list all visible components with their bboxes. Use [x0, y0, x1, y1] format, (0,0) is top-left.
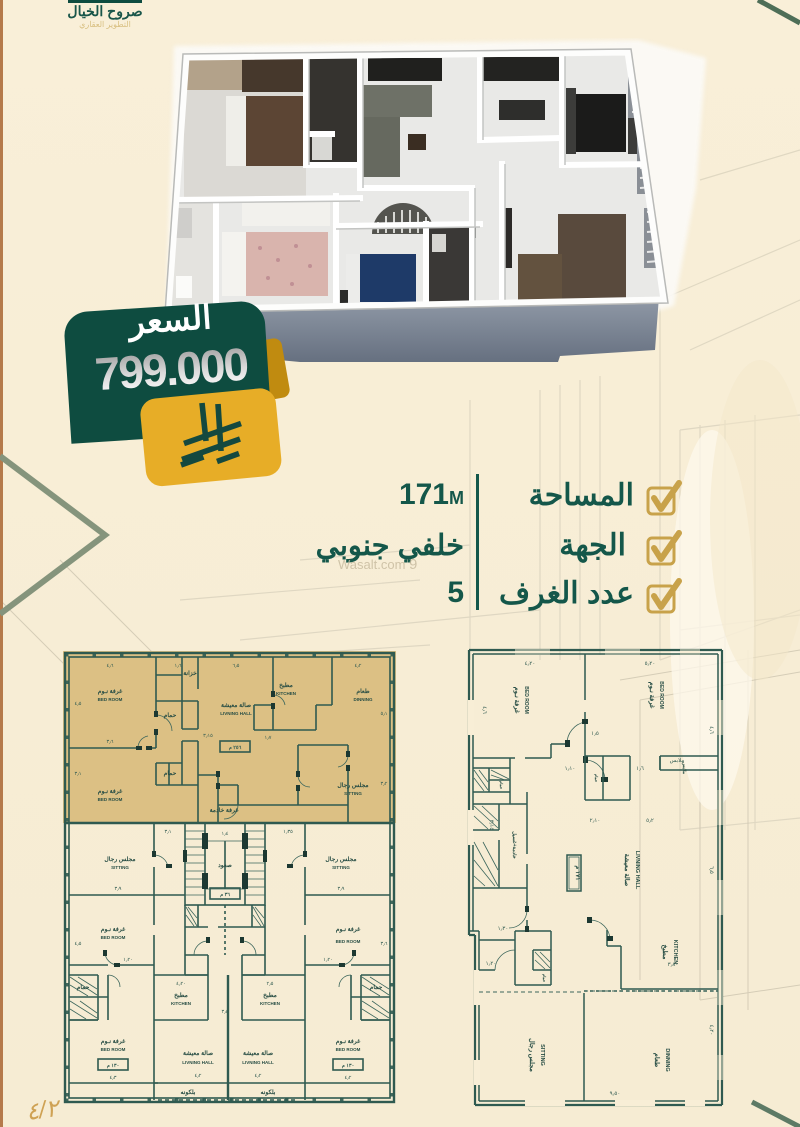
- svg-text:٤٫٢٠: ٤٫٢٠: [708, 1025, 714, 1036]
- svg-text:١٫٢٠: ١٫٢٠: [486, 961, 497, 967]
- svg-text:صالة معيشة: صالة معيشة: [623, 854, 631, 887]
- svg-text:حمام: حمام: [164, 770, 177, 777]
- svg-text:بلكونه: بلكونه: [181, 1089, 196, 1096]
- svg-text:حمام: حمام: [370, 984, 383, 991]
- svg-text:LIVNING HALL: LIVNING HALL: [634, 851, 640, 890]
- svg-text:٣٫٥: ٣٫٥: [222, 1009, 229, 1015]
- svg-text:مجلس رجال: مجلس رجال: [325, 856, 356, 863]
- svg-text:٤٫٦: ٤٫٦: [107, 663, 114, 669]
- svg-text:غرفة نـوم: غرفة نـوم: [101, 926, 126, 933]
- svg-text:KITCHEN: KITCHEN: [171, 1001, 191, 1006]
- svg-text:صعود: صعود: [218, 863, 232, 869]
- svg-text:غرفة نـوم: غرفة نـوم: [648, 682, 655, 709]
- svg-text:KITCHEN: KITCHEN: [276, 691, 296, 696]
- svg-text:مطبخ: مطبخ: [263, 992, 277, 999]
- svg-text:غرفة نـوم: غرفة نـوم: [336, 926, 361, 933]
- svg-text:مطبخ: مطبخ: [174, 992, 188, 999]
- svg-text:١٧١ م: ١٧١ م: [574, 865, 580, 880]
- svg-text:٤٫٢٠: ٤٫٢٠: [525, 661, 536, 667]
- svg-text:صالة معيشة: صالة معيشة: [221, 702, 251, 709]
- svg-text:DINNING: DINNING: [664, 1048, 670, 1071]
- svg-text:طعام: طعام: [356, 688, 369, 695]
- svg-text:٣٫٨٠: ٣٫٨٠: [668, 962, 679, 968]
- svg-text:١٫٢٠: ١٫٢٠: [323, 957, 333, 963]
- svg-text:غرفة نـوم: غرفة نـوم: [336, 1038, 361, 1045]
- svg-text:SITTING: SITTING: [539, 1044, 545, 1066]
- svg-text:غرفة نـوم: غرفة نـوم: [98, 788, 123, 795]
- svg-text:٣٫٦: ٣٫٦: [107, 739, 114, 745]
- svg-text:٣٦ م: ٣٦ م: [220, 892, 230, 898]
- svg-text:مجلس رجال: مجلس رجال: [528, 1038, 536, 1072]
- svg-text:٣٫١: ٣٫١: [165, 829, 172, 835]
- svg-text:ملابس: ملابس: [670, 757, 685, 764]
- svg-text:٦٫٥: ٦٫٥: [708, 866, 714, 874]
- svg-text:٤٫٥: ٤٫٥: [75, 701, 82, 707]
- svg-text:LIVNING HALL: LIVNING HALL: [182, 1060, 214, 1065]
- svg-text:SITTING: SITTING: [332, 865, 350, 870]
- svg-text:حمام: حمام: [541, 974, 547, 983]
- svg-text:١٫٧: ١٫٧: [265, 735, 272, 741]
- svg-text:مجلس رجال: مجلس رجال: [337, 782, 368, 789]
- svg-text:LIVNING HALL: LIVNING HALL: [242, 1060, 274, 1065]
- svg-text:صالة معيشة: صالة معيشة: [243, 1050, 273, 1057]
- svg-text:SITTING: SITTING: [111, 865, 129, 870]
- svg-text:BED ROOM: BED ROOM: [523, 686, 529, 714]
- svg-text:٣٫٩: ٣٫٩: [338, 886, 345, 892]
- svg-text:SITTING: SITTING: [344, 791, 362, 796]
- svg-text:بلكونه: بلكونه: [261, 1089, 276, 1096]
- svg-text:غرفة خادمة: غرفة خادمة: [210, 807, 240, 814]
- svg-text:BED ROOM: BED ROOM: [98, 697, 123, 702]
- svg-text:طعام: طعام: [653, 1053, 661, 1068]
- svg-text:BED ROOM: BED ROOM: [98, 797, 123, 802]
- svg-text:مطبخ: مطبخ: [279, 682, 293, 689]
- svg-text:BED ROOM: BED ROOM: [101, 935, 126, 940]
- svg-text:١٫١٠: ١٫١٠: [565, 766, 576, 772]
- svg-text:٥٫١: ٥٫١: [381, 711, 388, 717]
- svg-text:٤٫٢٠: ٤٫٢٠: [176, 981, 186, 987]
- svg-text:٤٫٢: ٤٫٢: [195, 1073, 202, 1079]
- svg-text:مطبخ: مطبخ: [661, 945, 669, 960]
- svg-text:خزانة: خزانة: [183, 670, 197, 677]
- svg-text:٢٥٦ م: ٢٥٦ م: [229, 745, 242, 751]
- svg-text:١٣٠ م: ١٣٠ م: [107, 1063, 120, 1069]
- svg-text:١٫٦: ١٫٦: [175, 663, 182, 669]
- svg-text:٤٫٣: ٤٫٣: [110, 1075, 117, 1081]
- svg-text:٤٫٥: ٤٫٥: [75, 941, 82, 947]
- svg-text:صالة معيشة: صالة معيشة: [183, 1050, 213, 1057]
- svg-text:٤٫٢: ٤٫٢: [355, 663, 362, 669]
- svg-text:مجلس رجال: مجلس رجال: [104, 856, 135, 863]
- svg-text:٢٫١٠: ٢٫١٠: [590, 818, 601, 824]
- svg-text:٥٫٢٠: ٥٫٢٠: [645, 661, 656, 667]
- svg-text:٥٫٢: ٥٫٢: [646, 818, 654, 824]
- svg-text:٤٫٦: ٤٫٦: [481, 706, 487, 714]
- svg-text:٤٫٢: ٤٫٢: [345, 1075, 352, 1081]
- svg-text:KITCHEN: KITCHEN: [672, 940, 678, 964]
- svg-text:غرفة نـوم: غرفة نـوم: [513, 687, 520, 714]
- svg-text:١٫٦: ١٫٦: [636, 766, 644, 772]
- svg-text:٣٫٦: ٣٫٦: [381, 941, 388, 947]
- svg-text:BED ROOM: BED ROOM: [336, 939, 361, 944]
- svg-text:٣٫١: ٣٫١: [75, 771, 82, 777]
- svg-text:حمام: حمام: [593, 774, 599, 783]
- svg-text:١٫٣٥: ١٫٣٥: [283, 829, 293, 835]
- svg-text:٣٫١٥: ٣٫١٥: [488, 820, 494, 831]
- svg-text:BED ROOM: BED ROOM: [336, 1047, 361, 1052]
- svg-text:٩٫٥٠: ٩٫٥٠: [610, 1091, 621, 1097]
- svg-text:حمام: حمام: [77, 984, 90, 991]
- svg-text:١٫٣٠: ١٫٣٠: [498, 926, 509, 932]
- svg-text:غرفة نـوم: غرفة نـوم: [98, 688, 123, 695]
- svg-text:BED ROOM: BED ROOM: [101, 1047, 126, 1052]
- svg-text:١٫٤: ١٫٤: [222, 831, 229, 837]
- svg-text:٣٫١٥: ٣٫١٥: [203, 733, 213, 739]
- svg-text:١٣٠ م: ١٣٠ م: [342, 1063, 355, 1069]
- svg-text:حمام: حمام: [498, 781, 504, 790]
- svg-text:٢٫٥: ٢٫٥: [267, 981, 274, 987]
- svg-text:KITCHEN: KITCHEN: [260, 1001, 280, 1006]
- svg-text:DINNING: DINNING: [354, 697, 373, 702]
- svg-text:خادمة+غسيل: خادمة+غسيل: [511, 831, 517, 859]
- svg-text:١٫٢٠: ١٫٢٠: [123, 957, 133, 963]
- svg-text:١٫٥: ١٫٥: [591, 731, 599, 737]
- svg-text:٦٫٥: ٦٫٥: [233, 663, 240, 669]
- svg-text:٤٫٦: ٤٫٦: [708, 726, 714, 734]
- svg-text:٣٫٩: ٣٫٩: [115, 886, 122, 892]
- svg-text:٣٫٢: ٣٫٢: [381, 781, 388, 787]
- svg-text:BED ROOM: BED ROOM: [658, 681, 664, 709]
- svg-text:حمام: حمام: [164, 712, 177, 719]
- svg-text:LIVNING HALL: LIVNING HALL: [220, 711, 252, 716]
- svg-text:غرفة نـوم: غرفة نـوم: [101, 1038, 126, 1045]
- svg-text:٤٫٢: ٤٫٢: [255, 1073, 262, 1079]
